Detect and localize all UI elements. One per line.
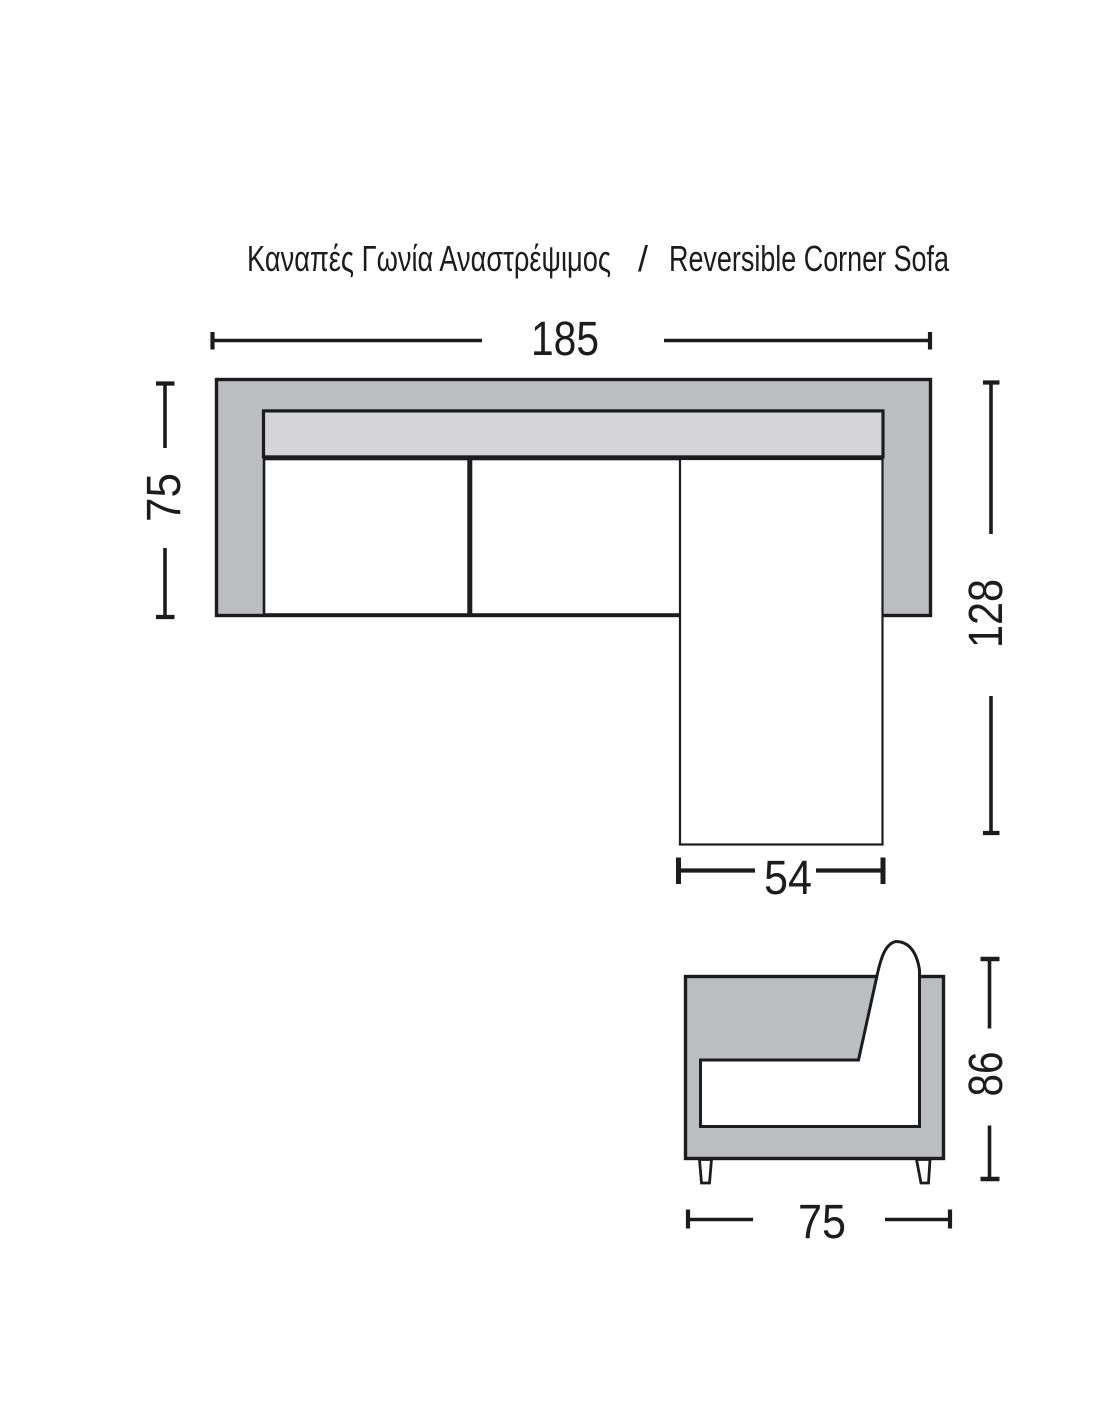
svg-text:54: 54 (764, 852, 812, 905)
svg-text:185: 185 (531, 313, 599, 366)
svg-text:Reversible Corner Sofa: Reversible Corner Sofa (669, 238, 950, 279)
svg-text:/: / (638, 238, 648, 279)
svg-text:128: 128 (960, 579, 1013, 648)
svg-text:86: 86 (960, 1052, 1013, 1097)
svg-text:75: 75 (798, 1196, 846, 1249)
svg-text:75: 75 (138, 473, 191, 522)
svg-text:Καναπές Γωνία Αναστρέψιμος: Καναπές Γωνία Αναστρέψιμος (247, 238, 611, 279)
